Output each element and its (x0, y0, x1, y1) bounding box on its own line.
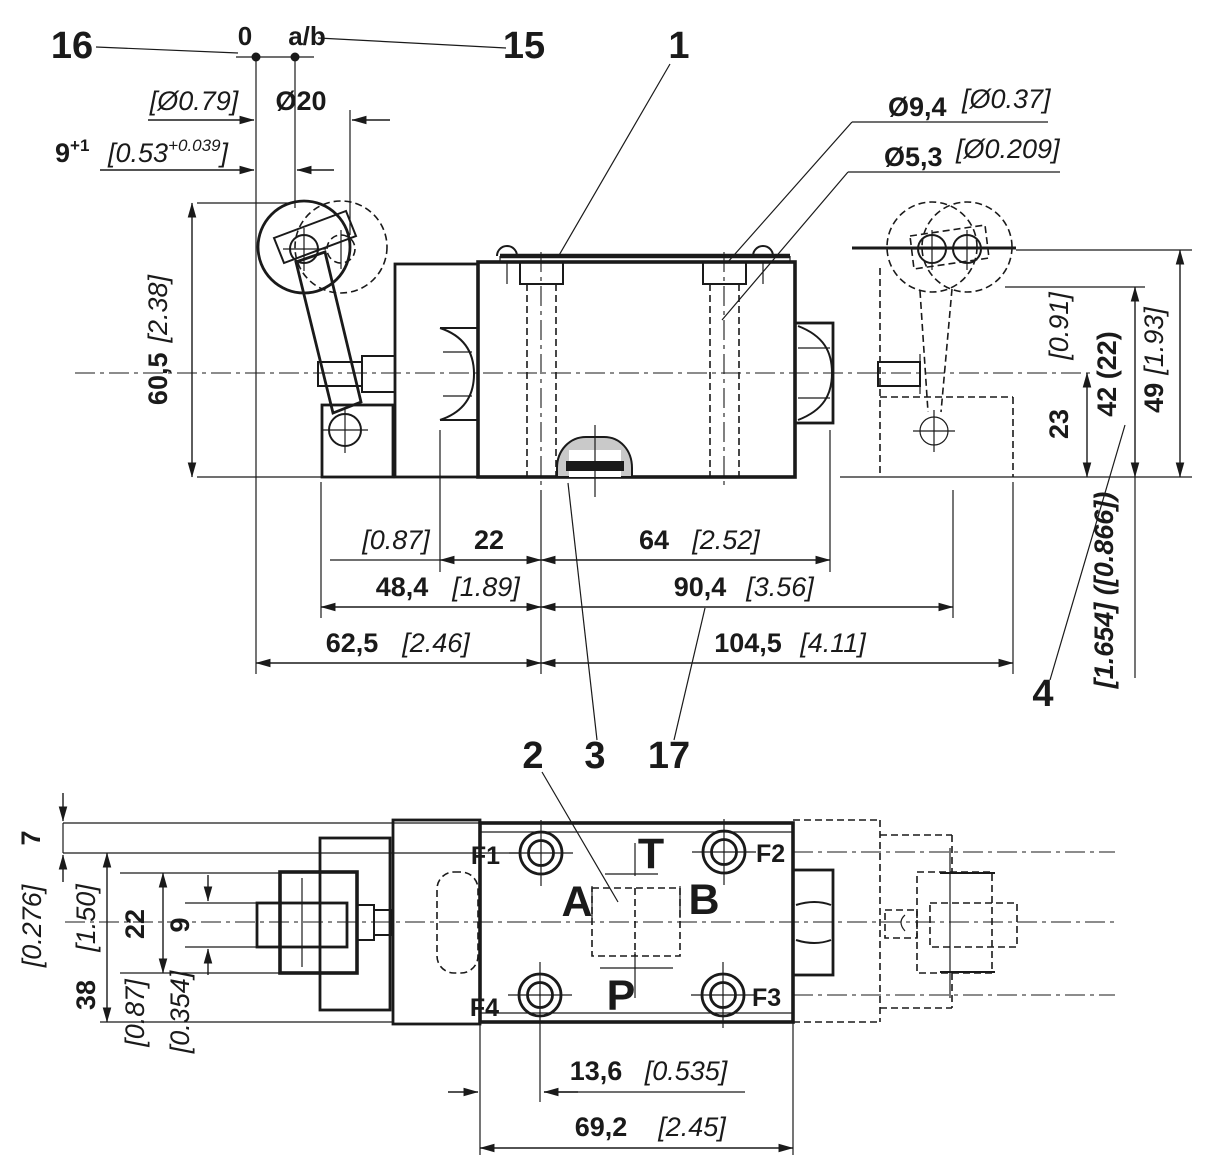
dim-bolt-hole-diameters: Ø9,4 [Ø0.37] Ø5,3 [Ø0.209] (722, 84, 1061, 320)
dim-484-mm: 48,4 (376, 572, 429, 602)
dim-136-in: [0.535] (644, 1056, 729, 1086)
bolt-hole-right (703, 252, 746, 490)
dim-hole-in: [Ø0.209] (955, 134, 1061, 164)
dim-plan22-mm: 22 (120, 909, 150, 939)
left-end-block (395, 264, 478, 477)
callout-1: 1 (668, 25, 689, 67)
dim-7-in: [0.276] (17, 883, 47, 968)
dim-692-in: [2.45] (657, 1112, 727, 1142)
dim-904-in: [3.56] (745, 572, 815, 602)
dim-7-mm: 7 (16, 830, 46, 845)
dim-22-in: [0.87] (361, 525, 431, 555)
plan-view: F1 F2 F3 F4 (16, 793, 1115, 1155)
dim-484-in: [1.89] (451, 572, 521, 602)
dim-38-mm: 38 (71, 980, 101, 1010)
callout-2: 2 (522, 735, 543, 777)
dims-plan-bottom: 13,6 [0.535] 69,2 [2.45] (448, 1022, 793, 1155)
dim-roller-dia-in: [Ø0.79] (149, 86, 240, 116)
alternate-lever-dashed (852, 202, 1016, 477)
label-f2: F2 (756, 840, 785, 868)
dim-904-mm: 90,4 (674, 572, 727, 602)
mount-hole-f3: F3 (691, 962, 781, 1028)
dim-23-mm: 23 (1044, 409, 1074, 439)
dim-49-in: [1.93] (1139, 306, 1169, 376)
port-label-t: T (638, 830, 664, 878)
svg-text:60,5[2.38]: 60,5[2.38] (143, 273, 173, 405)
dim-stroke-mm: 9 (55, 138, 70, 168)
dim-42-in: [1.654] ([0.866]) (1089, 492, 1119, 690)
dim-625-in: [2.46] (401, 628, 471, 658)
right-plan-details (793, 820, 1017, 1022)
ref-zero-label: 0 (238, 21, 252, 51)
dim-22-mm: 22 (474, 525, 504, 555)
dim-roller-dia-mm: Ø20 (275, 86, 326, 116)
dim-42-mm: 42 (22) (1092, 331, 1122, 417)
valve-body (75, 246, 1095, 497)
port-pattern: T A B P (561, 830, 719, 1020)
callout-3: 3 (584, 735, 605, 777)
dim-cbore-mm: Ø9,4 (888, 92, 947, 122)
callout-15: 15 (503, 25, 545, 67)
dim-625-mm: 62,5 (326, 628, 379, 658)
dim-1045-in: [4.11] (799, 628, 867, 658)
port-label-a: A (561, 878, 592, 926)
dim-stroke-tol: +1 (70, 136, 89, 155)
technical-drawing-page: 0 a/b 16 15 1 [Ø0.79] Ø20 9+1 [0.53+0 (0, 0, 1208, 1158)
ref-ab-label: a/b (288, 21, 326, 51)
port-label-p: P (607, 972, 636, 1020)
dim-23-in: [0.91] (1044, 291, 1074, 361)
svg-text:9+1: 9+1 (55, 136, 89, 168)
dim-roller-diameter: [Ø0.79] Ø20 (148, 86, 390, 235)
dim-64-mm: 64 (639, 525, 669, 555)
dim-plan22-in: [0.87] (120, 978, 150, 1048)
dim-stroke-in-sup: +0.039 (168, 136, 221, 155)
dim-9-in: [0.354] (165, 969, 195, 1054)
dim-38-in: [1.50] (71, 883, 101, 953)
dim-stroke: 9+1 [0.53+0.039] (55, 136, 334, 170)
spool-end-stub (878, 354, 920, 394)
dim-stroke-in-open: [0.53 (107, 138, 168, 168)
dim-605-in: [2.38] (143, 273, 173, 343)
svg-text:[0.53+0.039]: [0.53+0.039] (107, 136, 230, 168)
label-f3: F3 (752, 984, 781, 1012)
dims-bottom-rows: [0.87] 22 64 [2.52] 48,4 [1.89] 90,4 [3.… (256, 430, 1013, 674)
dim-136-mm: 13,6 (570, 1056, 623, 1086)
dim-605-mm: 60,5 (143, 353, 173, 406)
valve-drawing-svg: 0 a/b 16 15 1 [Ø0.79] Ø20 9+1 [0.53+0 (0, 0, 1208, 1158)
side-view: 0 a/b 16 15 1 [Ø0.79] Ø20 9+1 [0.53+0 (51, 21, 1192, 902)
callout-16: 16 (51, 25, 93, 67)
dim-64-in: [2.52] (691, 525, 761, 555)
dims-plan-left: 7 [0.276] [1.50] 38 22 [0.87] 9 [0.354] (16, 793, 393, 1054)
roller-lever-assembly (258, 201, 395, 477)
dim-49-mm: 49 (1139, 383, 1169, 413)
callout-17: 17 (648, 735, 690, 777)
reference-marks: 0 a/b (236, 21, 326, 674)
callouts-middle: 2 3 17 (522, 483, 705, 902)
bolt-hole-left (520, 252, 563, 490)
dims-right-side: [0.91] 23 42 (22) 49[1.93] [1.654] ([0.8… (840, 250, 1192, 715)
svg-text:49[1.93]: 49[1.93] (1139, 306, 1169, 413)
label-f4: F4 (470, 994, 499, 1022)
dim-9-mm: 9 (165, 917, 195, 932)
label-f1: F1 (471, 842, 500, 870)
dim-hole-mm: Ø5,3 (884, 142, 943, 172)
port-label-b: B (688, 876, 719, 924)
mount-hole-f4: F4 (470, 962, 572, 1028)
dim-cbore-in: [Ø0.37] (961, 84, 1052, 114)
dim-1045-mm: 104,5 (714, 628, 782, 658)
dim-692-mm: 69,2 (575, 1112, 628, 1142)
